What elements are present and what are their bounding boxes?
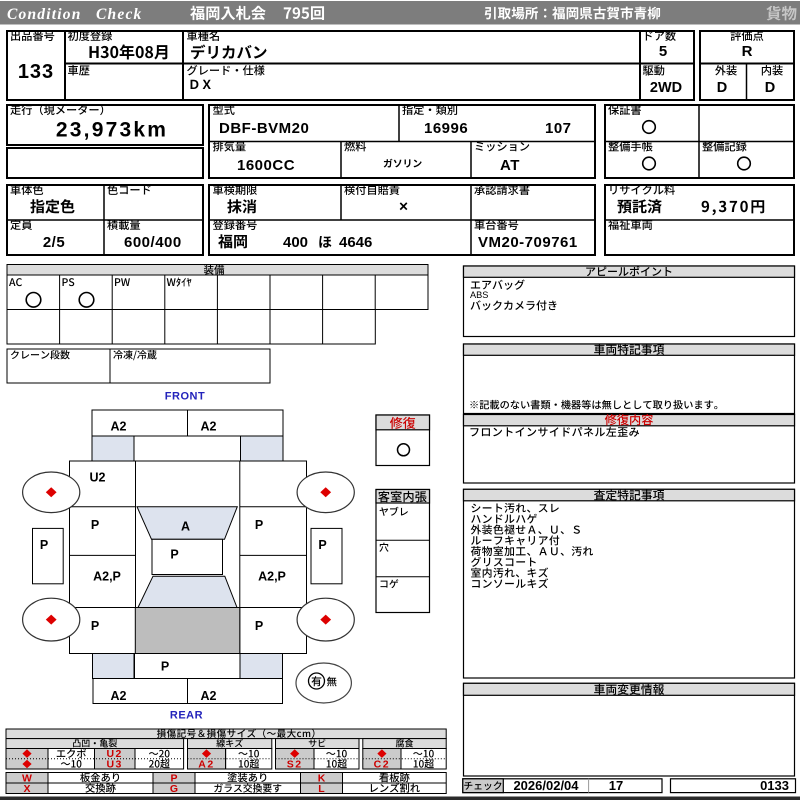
svg-text:2/5: 2/5: [43, 234, 65, 251]
svg-text:G: G: [170, 783, 178, 795]
svg-text:U2: U2: [90, 471, 106, 485]
svg-text:VM20-709761: VM20-709761: [478, 234, 578, 251]
svg-text:Check: Check: [96, 6, 142, 23]
svg-text:P: P: [91, 619, 99, 633]
svg-text:2026/02/04: 2026/02/04: [513, 778, 579, 793]
svg-text:400: 400: [283, 234, 308, 251]
svg-text:0133: 0133: [760, 778, 789, 793]
svg-text:R: R: [742, 43, 753, 60]
svg-text:P: P: [161, 660, 169, 674]
svg-text:A2: A2: [201, 689, 217, 703]
svg-text:D: D: [765, 80, 775, 96]
svg-text:A2: A2: [201, 419, 217, 433]
svg-text:×: ×: [399, 199, 408, 216]
svg-text:P: P: [318, 538, 326, 552]
svg-text:A2: A2: [198, 758, 214, 770]
svg-text:L: L: [318, 783, 325, 795]
svg-text:DBF-BVM20: DBF-BVM20: [219, 120, 309, 137]
svg-text:Condition: Condition: [7, 6, 82, 23]
svg-text:D: D: [717, 80, 727, 96]
svg-text:S2: S2: [287, 758, 303, 770]
svg-text:16996: 16996: [424, 120, 468, 137]
svg-text:P: P: [91, 518, 99, 532]
svg-text:A2,P: A2,P: [93, 570, 121, 584]
svg-text:P: P: [255, 518, 263, 532]
svg-text:FRONT: FRONT: [165, 391, 205, 403]
svg-text:1600CC: 1600CC: [237, 157, 295, 174]
svg-text:4646: 4646: [339, 234, 372, 251]
svg-text:P: P: [170, 548, 178, 562]
svg-text:A2,P: A2,P: [258, 570, 286, 584]
svg-text:C2: C2: [374, 758, 390, 770]
svg-text:23,973km: 23,973km: [56, 119, 168, 142]
svg-text:A2: A2: [111, 689, 127, 703]
svg-text:REAR: REAR: [170, 710, 203, 722]
svg-text:AT: AT: [500, 157, 520, 174]
svg-text:X: X: [23, 783, 30, 795]
svg-text:107: 107: [545, 120, 572, 137]
svg-text:133: 133: [18, 61, 54, 83]
svg-text:ABS: ABS: [470, 290, 488, 300]
svg-text:A2: A2: [111, 419, 127, 433]
svg-text:17: 17: [609, 778, 623, 793]
svg-text:P: P: [40, 538, 48, 552]
svg-text:A: A: [181, 520, 190, 534]
svg-text:U3: U3: [106, 758, 122, 770]
svg-text:2WD: 2WD: [650, 80, 682, 96]
svg-text:600/400: 600/400: [124, 234, 182, 251]
svg-text:5: 5: [659, 43, 667, 60]
svg-text:P: P: [255, 619, 263, 633]
